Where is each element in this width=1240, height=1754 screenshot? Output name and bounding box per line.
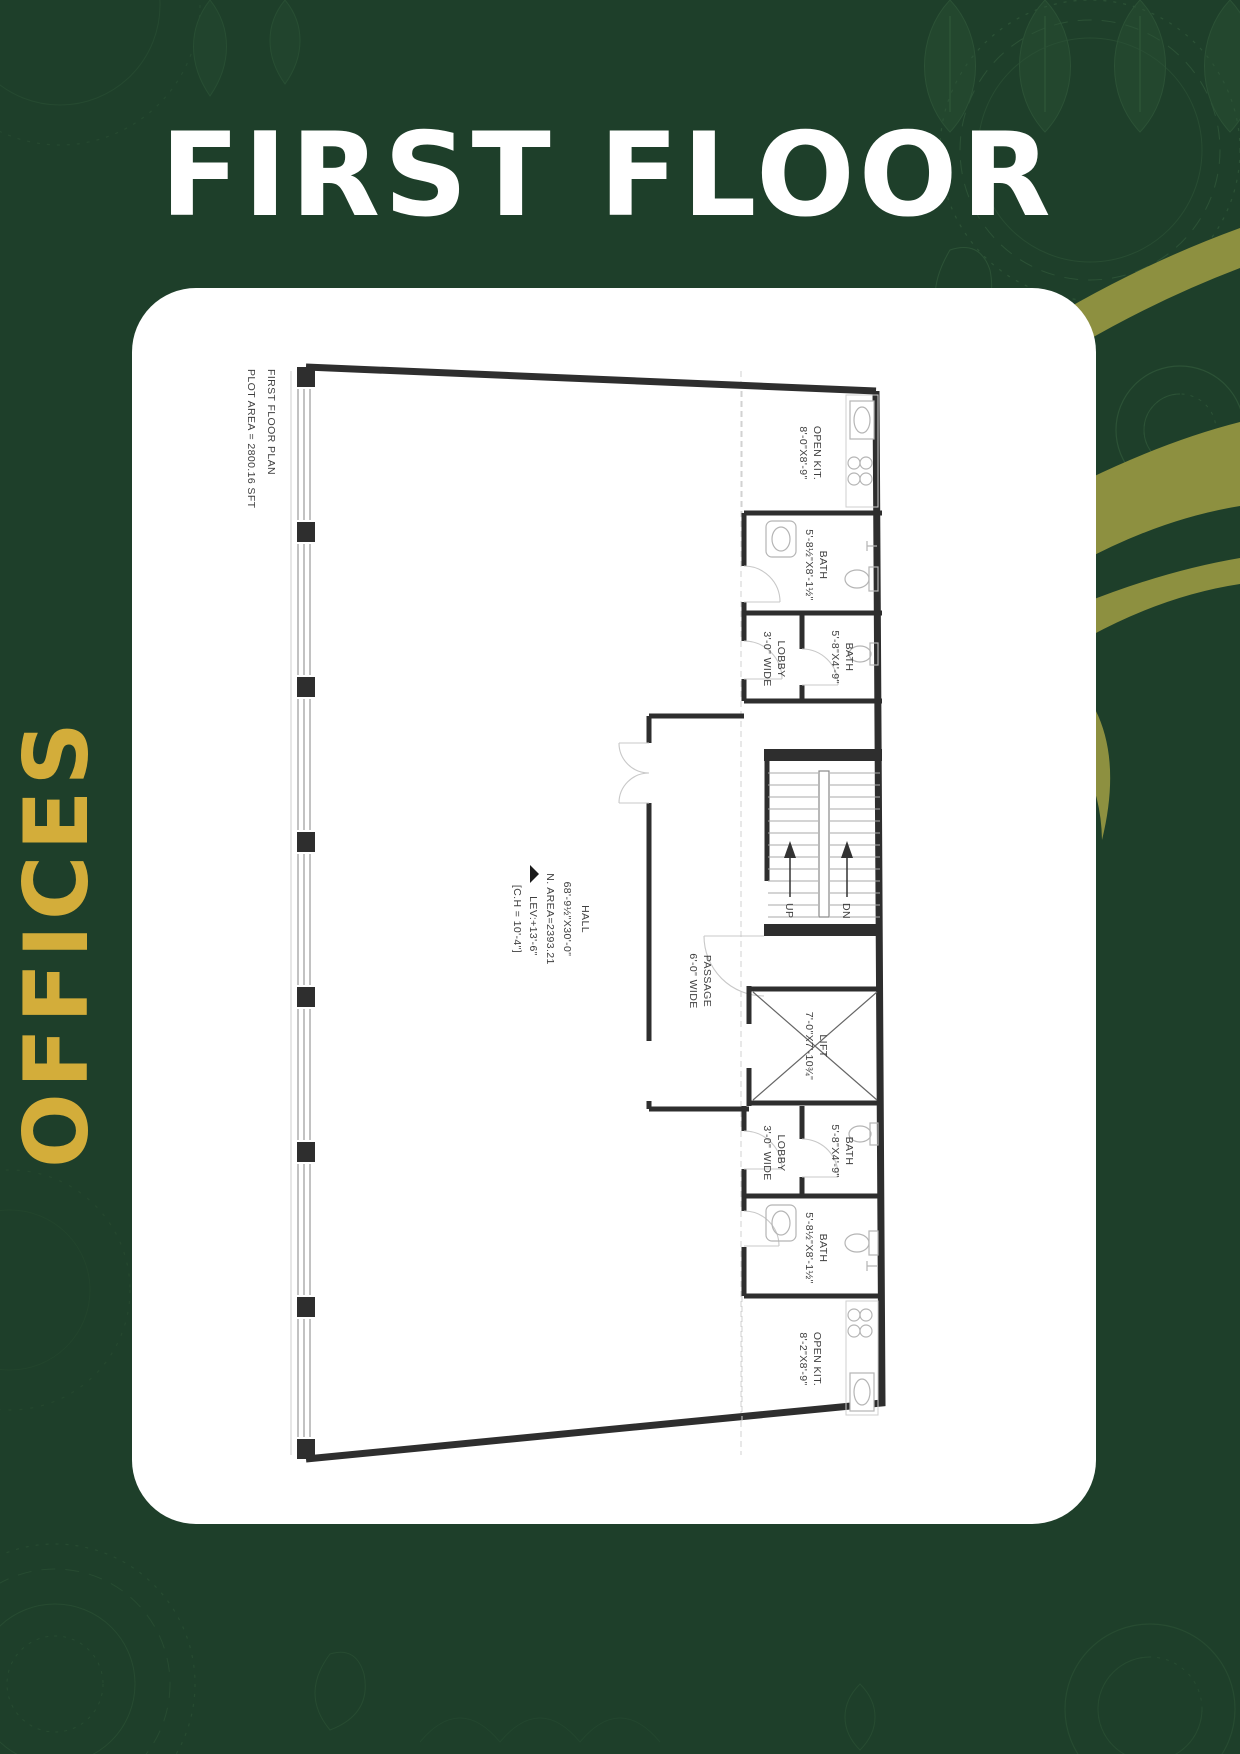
dn-arrow <box>841 841 853 858</box>
up-arrow <box>784 841 796 858</box>
lobby-1-dims: 3'-0" WIDE <box>761 631 773 686</box>
page-title: FIRST FLOOR <box>0 108 1215 243</box>
hall-dims: 68'-9½"X30'-0" <box>561 882 573 957</box>
hall-net-area: N. AREA=2393.21 <box>544 873 556 965</box>
bath-large-1-name: BATH <box>817 551 829 580</box>
bath-small-1-name: BATH <box>843 643 855 672</box>
lobby-2-name: LOBBY <box>775 1134 787 1171</box>
level-marker-icon <box>530 865 539 883</box>
hall-level: LEV:+13'-6" <box>527 896 539 956</box>
hall-name: HALL <box>579 905 591 933</box>
poster-page: FIRST FLOOR OFFICES <box>0 0 1240 1754</box>
passage-name: PASSAGE <box>701 955 713 1007</box>
lobby-1-name: LOBBY <box>775 640 787 677</box>
staircase: DN UP <box>704 749 882 996</box>
room-labels: OPEN KIT. 8'-0"X8'-9" BATH 5'-8½"X8'-1½"… <box>687 426 855 1386</box>
bath-small-2-dims: 5'-8"X4'-9" <box>829 1124 841 1177</box>
mandala-pattern-bottom <box>0 1494 1240 1754</box>
plan-title-block: FIRST FLOOR PLAN PLOT AREA = 2800.16 SFT <box>245 369 277 509</box>
open-kitchen-bottom-dims: 8'-2"X8'-9" <box>797 1332 809 1385</box>
hall-ceiling-height: [C.H = 10'-4"] <box>511 885 523 953</box>
lift-dims: 7'-0"X7'-10¾" <box>803 1012 815 1081</box>
hall-label-block: HALL 68'-9½"X30'-0" N. AREA=2393.21 LEV:… <box>511 865 591 965</box>
stairs-dn-label: DN <box>840 903 852 919</box>
bath-large-1-dims: 5'-8½"X8'-1½" <box>803 529 815 601</box>
floor-plan-rotated-wrap: DN UP <box>234 341 994 1471</box>
floor-plan-card: DN UP <box>132 288 1096 1524</box>
lift-name: LIFT <box>817 1034 829 1057</box>
plan-title: FIRST FLOOR PLAN <box>265 369 277 475</box>
stairs-up-label: UP <box>783 903 795 918</box>
bath-small-2-name: BATH <box>843 1137 855 1166</box>
door-arcs <box>619 566 838 1246</box>
bath-large-2-dims: 5'-8½"X8'-1½" <box>803 1212 815 1284</box>
lift-shaft <box>749 986 882 1106</box>
open-kitchen-top-name: OPEN KIT. <box>811 426 823 480</box>
open-kitchen-top-dims: 8'-0"X8'-9" <box>797 426 809 479</box>
lobby-2-dims: 3'-0" WIDE <box>761 1125 773 1180</box>
floor-plan-drawing: DN UP <box>234 341 994 1471</box>
plan-plot-area: PLOT AREA = 2800.16 SFT <box>245 369 257 509</box>
window-bays <box>297 367 315 1459</box>
open-kitchen-bottom-name: OPEN KIT. <box>811 1332 823 1386</box>
bath-large-2-name: BATH <box>817 1234 829 1263</box>
side-label-offices: OFFICES <box>9 690 104 1195</box>
passage-dims: 6'-0" WIDE <box>687 953 699 1008</box>
bath-small-1-dims: 5'-8"X4'-9" <box>829 630 841 683</box>
